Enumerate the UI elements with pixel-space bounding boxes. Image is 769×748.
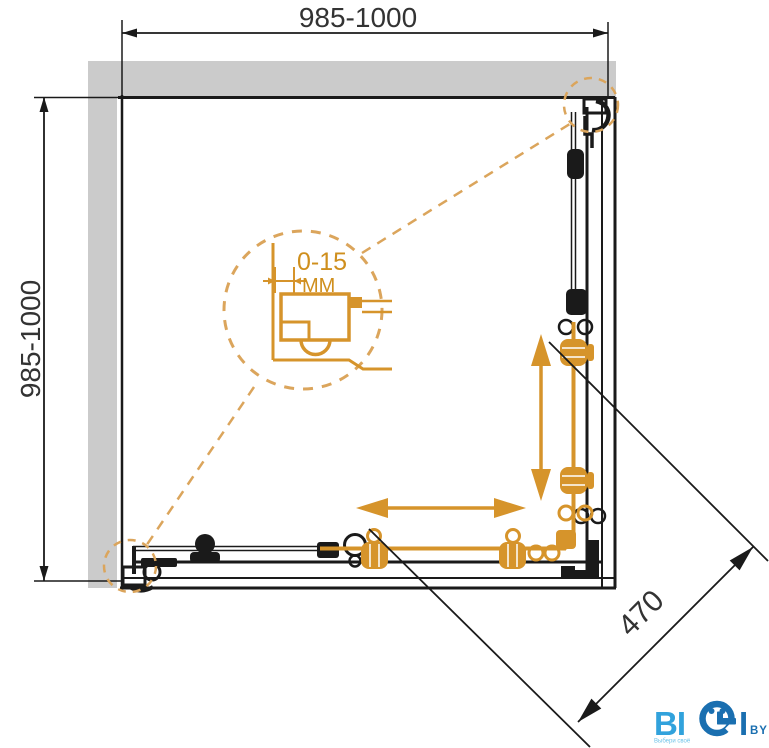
detail-leader-top-right [362,122,573,253]
shower-enclosure-plan-drawing: 0-15 MM 985-1000 985-1000 470 BI [0,0,769,748]
diagonal-dimension-label: 470 [612,584,671,643]
detail-profile-inner [281,322,309,340]
detail-leader-bottom-left [146,387,254,546]
hardware-black [123,99,609,591]
roller-right-lower-orange [560,467,594,494]
dim-arrow-icon [122,29,137,38]
dim-arrow-icon [40,566,49,581]
detail-profile-round [301,340,330,355]
arrow-left-icon [356,498,388,518]
roller-cap-orange [368,530,381,543]
roller-body [499,542,526,569]
door-glass-black [133,112,576,551]
roller-right-top-black [567,149,584,179]
arrow-right-icon [494,498,526,518]
wall-left [88,61,117,588]
roller-wheel-orange-icon [578,506,592,520]
roller-wheel-orange-icon [559,506,573,520]
arrow-up-icon [531,334,551,366]
dim-arrow-icon [593,29,608,38]
roller-bottom-black-cap [195,534,215,554]
clamp-right-black [566,289,587,315]
corner-bracket-step [561,566,575,573]
brand-logo: BI I BY Выбери своё [654,704,768,745]
roller-bottom-left-orange [361,542,388,569]
detail-unit-label: MM [302,275,335,297]
roller-cap-orange [507,530,520,543]
roller-tab [587,472,594,489]
top-dimension-label: 985-1000 [299,2,417,33]
detail-adjustment-label: 0-15 [297,248,347,276]
roller-bottom-right-orange [499,542,526,569]
dimension-top: 985-1000 [122,2,608,38]
logo-text-part1: BI [654,705,685,742]
roller-tab [587,344,594,361]
detail-floor-line [273,360,392,369]
dim-arrow-icon [40,97,49,112]
sliding-doors-orange [320,322,594,569]
wall-top [88,61,616,97]
detail-profile-notch [349,297,362,308]
arrow-down-icon [531,469,551,501]
roller-body [560,467,587,494]
logo-slogan: Выбери своё [654,739,691,745]
logo-suffix: BY [750,725,768,737]
walls [88,61,616,588]
slide-direction-arrows [356,334,551,518]
roller-wheel-icon [578,320,592,334]
roller-right-upper-orange [560,339,594,366]
logo-g-icon [703,704,743,736]
roller-body [560,339,587,366]
roller-wheel-icon [559,320,573,334]
technical-drawing-canvas: 0-15 MM 985-1000 985-1000 470 BI [0,0,769,748]
dim-ext-line-b [549,342,768,561]
logo-text-part2: I [739,705,748,742]
profile-hook-icon [592,101,609,130]
detail-dim-arrow-icon [294,278,301,285]
logo-eye-icon [709,708,715,714]
left-dimension-label: 985-1000 [15,280,46,398]
roller-bottom-black-base [190,552,220,563]
door-corner-block [556,530,576,549]
dimension-left: 985-1000 [15,97,49,581]
roller-body [361,542,388,569]
logo-eye-icon [720,708,726,714]
enclosure-frame [34,20,616,588]
detail-profile-body [281,294,349,340]
dim-line [578,547,753,722]
